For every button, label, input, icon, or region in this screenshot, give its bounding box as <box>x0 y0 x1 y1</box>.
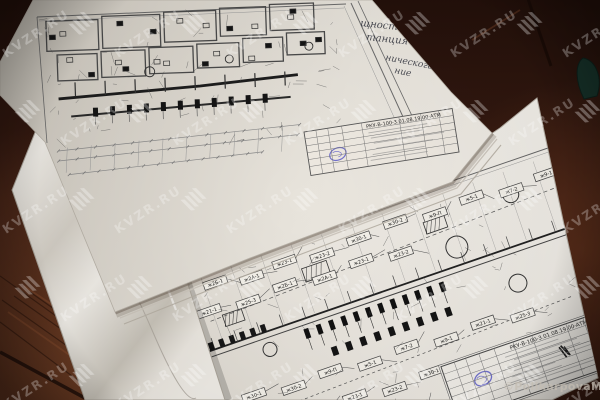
scene-svg: ж2Б-1ж2А-1ж23-1ж23-2ж30-1ж30-2ж9-Пж5-1ж7… <box>0 0 600 400</box>
copyright-watermark: ©PolikarpovaM32007 <box>503 380 600 393</box>
photo-of-blueprints: ж2Б-1ж2А-1ж23-1ж23-2ж30-1ж30-2ж9-Пж5-1ж7… <box>0 0 600 400</box>
